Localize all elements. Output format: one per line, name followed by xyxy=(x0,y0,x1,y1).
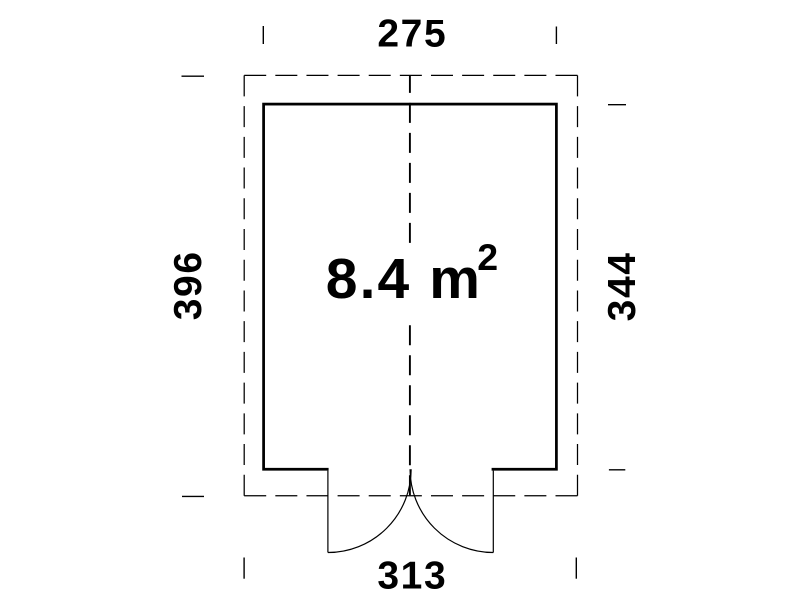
svg-text:344: 344 xyxy=(601,251,644,321)
svg-text:396: 396 xyxy=(167,250,210,320)
svg-text:313: 313 xyxy=(377,554,447,597)
svg-text:8.4 m: 8.4 m xyxy=(326,247,482,311)
svg-text:2: 2 xyxy=(477,236,498,278)
svg-text:275: 275 xyxy=(377,13,447,56)
